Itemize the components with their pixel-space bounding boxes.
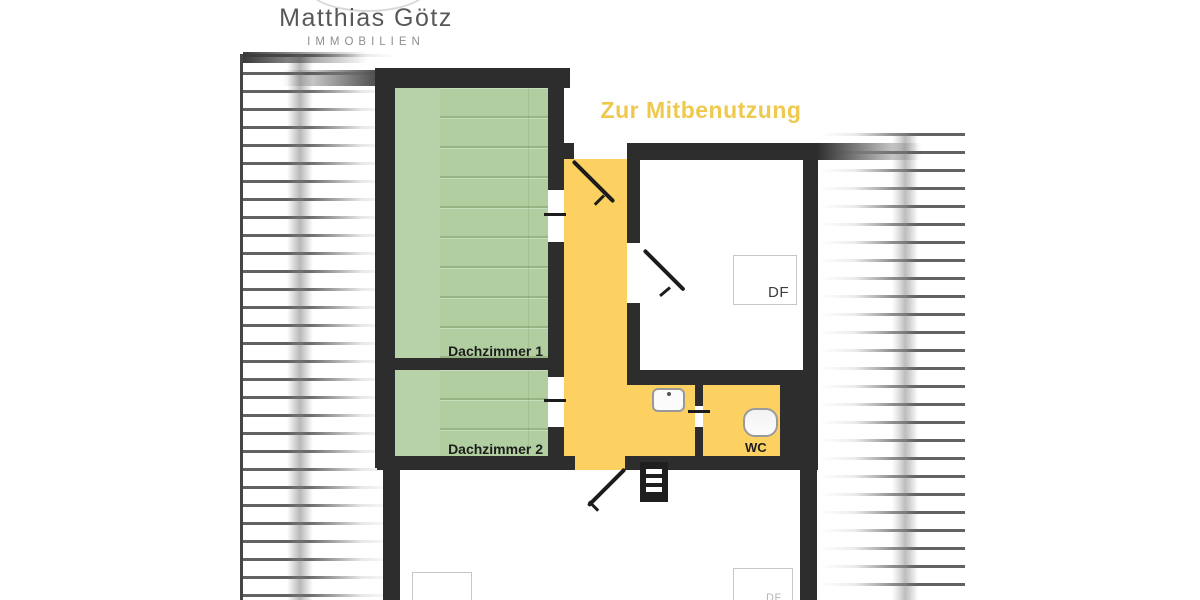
wall-green-right-b	[548, 242, 564, 377]
wall-green-top	[375, 68, 570, 88]
floorplan-page: Matthias Götz IMMOBILIEN	[0, 0, 1200, 600]
toilet-icon	[743, 408, 778, 437]
wall-bottomroom-left	[383, 456, 400, 600]
room-label-dachzimmer-2: Dachzimmer 2	[395, 441, 543, 457]
wall-green-left	[375, 68, 395, 468]
door-swing-bottom-room	[587, 468, 627, 508]
wall-shadow-right	[817, 143, 922, 160]
door-swing-df-room	[643, 249, 686, 292]
roof-hatch-left	[240, 54, 395, 600]
wall-hallway-stub	[548, 143, 574, 159]
chimney-slot	[646, 478, 662, 483]
hatch-shadow-top-left	[243, 52, 368, 63]
door-tick-dachzimmer-1	[544, 213, 566, 216]
wall-bottomroom-right	[800, 456, 817, 600]
room-dachzimmer-1	[395, 88, 548, 358]
wall-df-left-b	[627, 303, 640, 370]
wall-df-left-a	[627, 160, 640, 243]
wall-bottom-left	[377, 456, 575, 470]
roof-window-faint-right	[733, 568, 793, 600]
wall-bath-wc-a	[695, 385, 703, 406]
chimney-icon	[640, 462, 668, 502]
wall-wc-right	[780, 385, 818, 456]
wall-bath-wc-b	[695, 427, 703, 456]
door-swing-arc	[659, 286, 671, 297]
faucet-dot	[667, 392, 671, 396]
chimney-slot	[646, 487, 662, 492]
wall-df-right	[803, 143, 818, 385]
shared-use-title: Zur Mitbenutzung	[572, 97, 830, 124]
room-label-wc: WC	[745, 440, 767, 455]
roof-window-faint-left	[412, 572, 472, 600]
df-label: DF	[768, 284, 789, 301]
wall-green-right-c	[548, 427, 564, 456]
room-label-dachzimmer-1: Dachzimmer 1	[395, 343, 543, 359]
floor-texture	[440, 88, 548, 358]
roof-hatch-fade	[820, 133, 965, 600]
brand-name: Matthias Götz	[236, 4, 496, 33]
wall-room-divider	[385, 358, 564, 370]
wall-df-bottom	[627, 370, 817, 385]
brand-tagline: IMMOBILIEN	[236, 36, 496, 48]
sink-icon	[652, 388, 685, 412]
hallway-door-opening	[575, 456, 625, 470]
door-tick-dachzimmer-2	[544, 399, 566, 402]
roof-hatch-right	[820, 133, 965, 600]
roof-hatch-fade	[243, 54, 395, 600]
df-label-faint: DF	[766, 592, 782, 600]
door-tick-bath-wc	[688, 410, 710, 413]
chimney-slot	[646, 469, 662, 474]
wall-green-right-a	[548, 88, 564, 190]
wall-df-top	[627, 143, 817, 160]
brand-logo: Matthias Götz IMMOBILIEN	[236, 4, 496, 48]
